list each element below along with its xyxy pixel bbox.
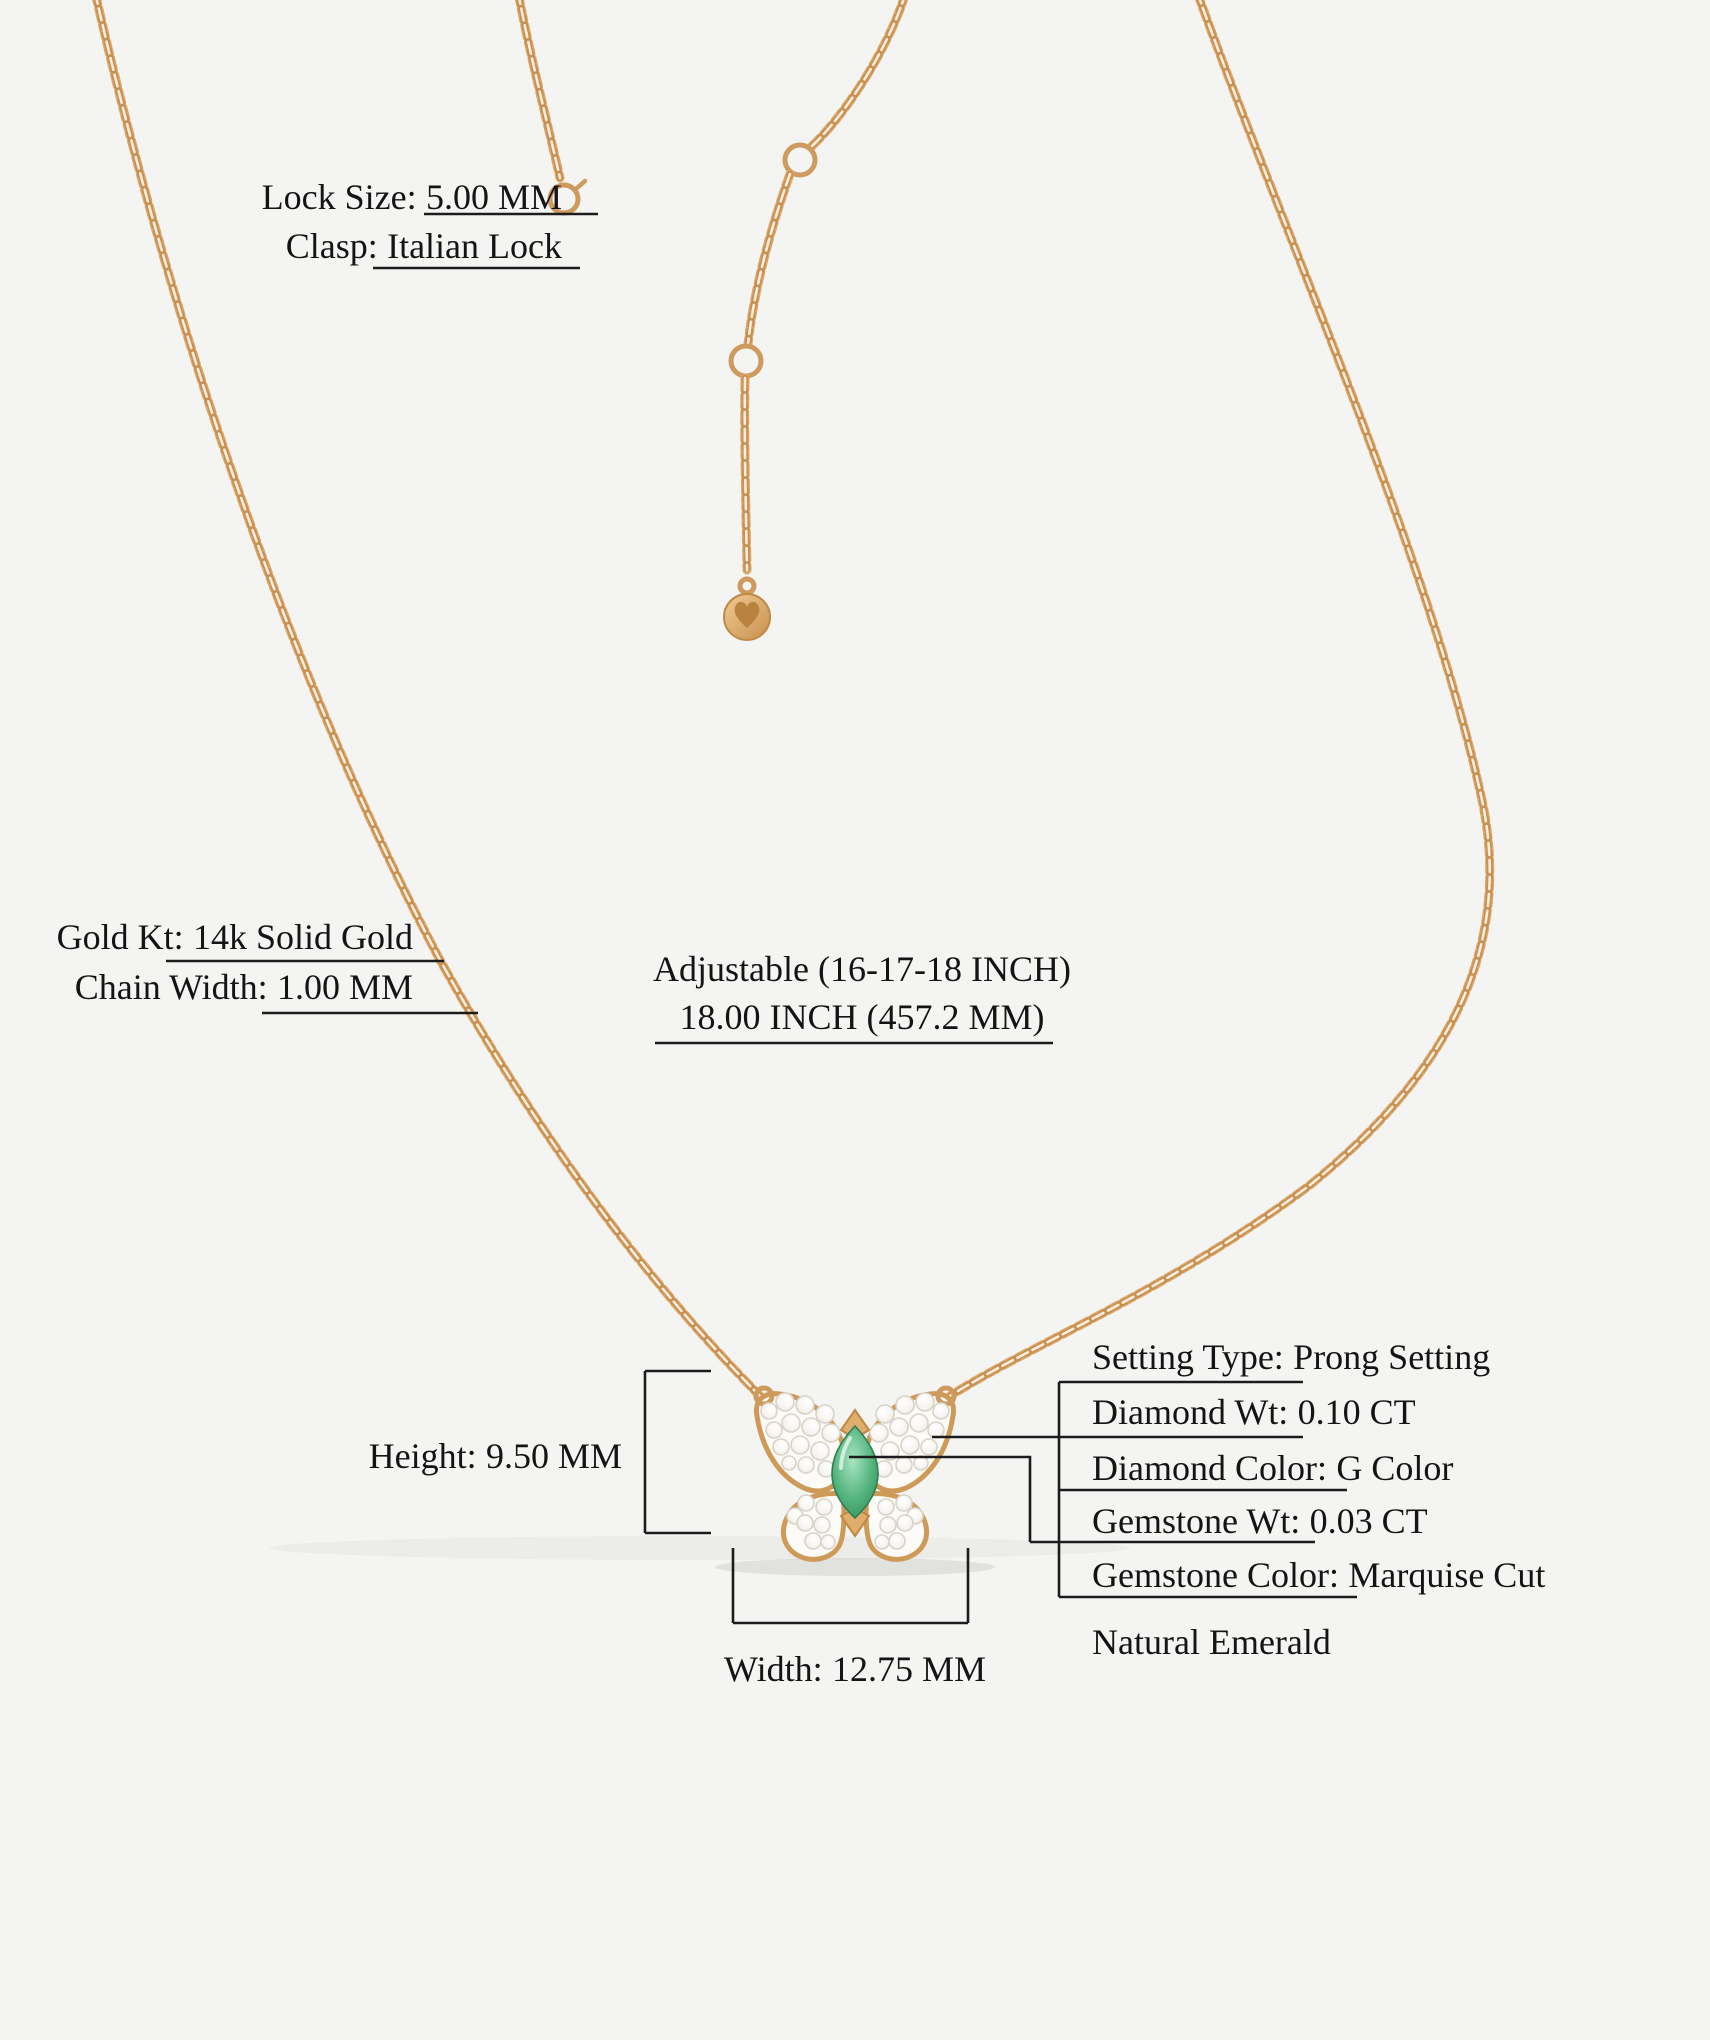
brand-disc-charm-icon bbox=[724, 594, 770, 640]
spec-value: Marquise Cut bbox=[1348, 1555, 1545, 1595]
spec-setting-type: Setting Type:Prong Setting bbox=[1092, 1336, 1490, 1378]
spec-label: Gemstone Wt: bbox=[1092, 1501, 1300, 1541]
spec-label: Setting Type: bbox=[1092, 1337, 1284, 1377]
height-value: 9.50 MM bbox=[486, 1436, 622, 1476]
spec-value: Prong Setting bbox=[1293, 1337, 1490, 1377]
chain-width-label: Chain Width:1.00 MM bbox=[15, 966, 413, 1008]
product-infographic: Lock Size:5.00 MM Clasp:Italian Lock Gol… bbox=[0, 0, 1710, 2040]
chain-width-value: 1.00 MM bbox=[277, 967, 413, 1007]
gold-kt-key: Gold Kt: bbox=[57, 917, 184, 957]
adjustable-line2: 18.00 INCH (457.2 MM) bbox=[608, 996, 1116, 1038]
extender-chain bbox=[724, 0, 906, 640]
chain-width-key: Chain Width: bbox=[75, 967, 268, 1007]
spec-value: G Color bbox=[1336, 1448, 1453, 1488]
adjustable-line1: Adjustable (16-17-18 INCH) bbox=[608, 948, 1116, 990]
pendant-shadow bbox=[715, 1558, 995, 1576]
spec-diamond-wt: Diamond Wt:0.10 CT bbox=[1092, 1391, 1416, 1433]
lock-size-key: Lock Size: bbox=[262, 177, 417, 217]
gold-kt-value: 14k Solid Gold bbox=[193, 917, 413, 957]
clasp-key: Clasp: bbox=[286, 226, 378, 266]
right-chain bbox=[950, 0, 1490, 1396]
width-key: Width: bbox=[724, 1649, 823, 1689]
spec-value: 0.10 CT bbox=[1298, 1392, 1416, 1432]
width-value: 12.75 MM bbox=[832, 1649, 986, 1689]
spec-note-natural-emerald: Natural Emerald bbox=[1092, 1621, 1331, 1663]
clasp-chain bbox=[518, 0, 560, 178]
ground-shadow bbox=[270, 1536, 1130, 1560]
lock-size-label: Lock Size:5.00 MM bbox=[255, 176, 562, 218]
height-bracket bbox=[645, 1371, 711, 1533]
clasp-label: Clasp:Italian Lock bbox=[255, 225, 562, 267]
width-label: Width:12.75 MM bbox=[700, 1648, 1010, 1690]
lock-size-value: 5.00 MM bbox=[426, 177, 562, 217]
spec-gemstone-color: Gemstone Color:Marquise Cut bbox=[1092, 1554, 1545, 1596]
spec-diamond-color: Diamond Color:G Color bbox=[1092, 1447, 1453, 1489]
spec-label: Diamond Wt: bbox=[1092, 1392, 1288, 1432]
spec-label: Diamond Color: bbox=[1092, 1448, 1327, 1488]
spec-value: 0.03 CT bbox=[1310, 1501, 1428, 1541]
height-key: Height: bbox=[369, 1436, 477, 1476]
butterfly-pendant bbox=[756, 1388, 954, 1559]
extender-ring-icon bbox=[731, 346, 761, 376]
height-label: Height:9.50 MM bbox=[310, 1435, 622, 1477]
spec-label: Gemstone Color: bbox=[1092, 1555, 1339, 1595]
clasp-value: Italian Lock bbox=[387, 226, 562, 266]
gold-kt-label: Gold Kt:14k Solid Gold bbox=[15, 916, 413, 958]
spec-gemstone-wt: Gemstone Wt:0.03 CT bbox=[1092, 1500, 1428, 1542]
